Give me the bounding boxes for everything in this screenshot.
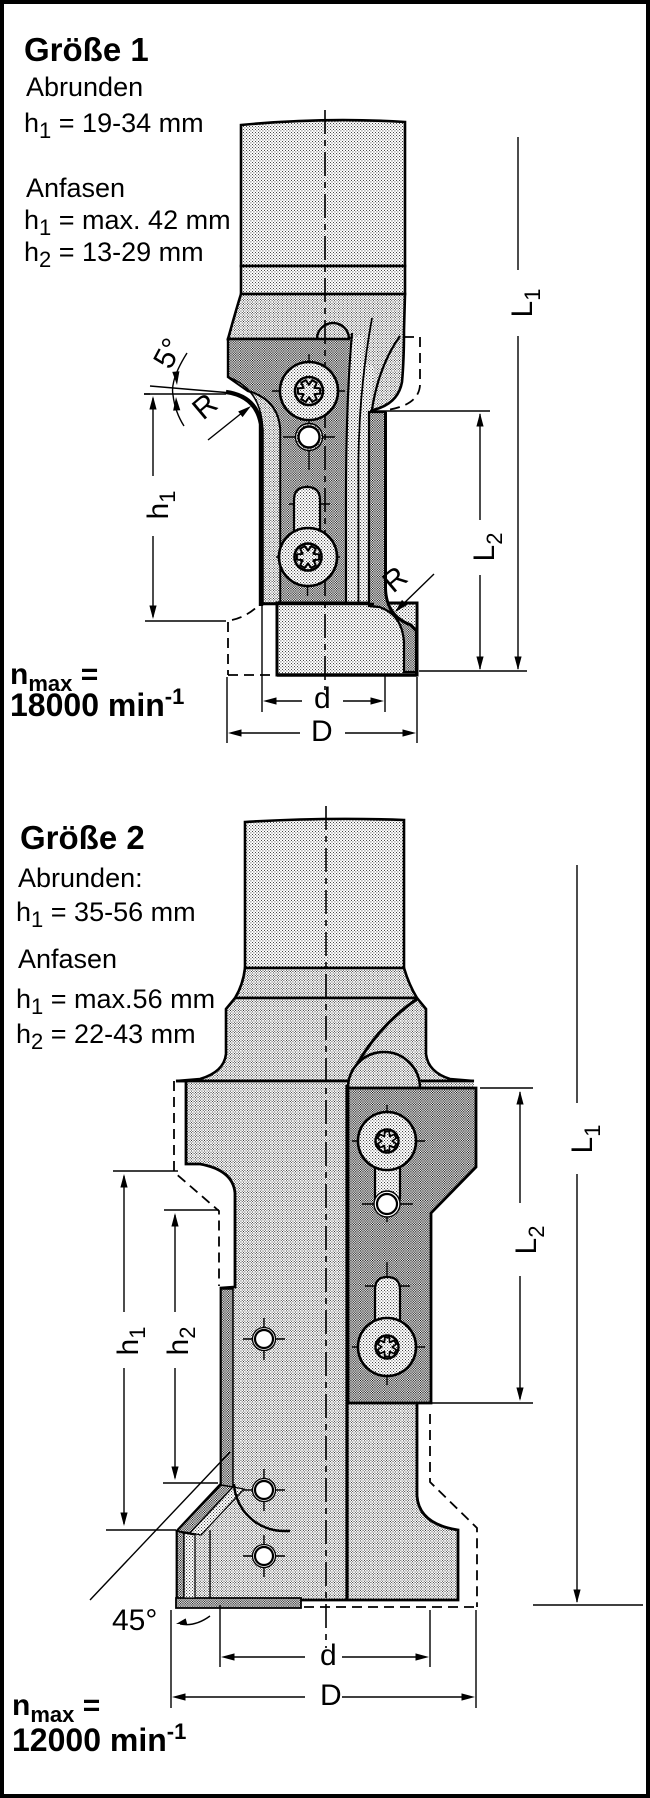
- svg-text:L1: L1: [506, 289, 545, 318]
- svg-text:h1 = max.56 mm: h1 = max.56 mm: [16, 984, 215, 1019]
- svg-text:h1: h1: [112, 1327, 150, 1356]
- svg-text:Anfasen: Anfasen: [26, 173, 125, 203]
- svg-text:5°: 5°: [147, 333, 190, 374]
- svg-text:L1: L1: [566, 1125, 605, 1154]
- svg-text:L2: L2: [510, 1226, 549, 1255]
- svg-text:Anfasen: Anfasen: [18, 944, 117, 974]
- svg-text:Abrunden: Abrunden: [26, 72, 143, 102]
- svg-text:D: D: [320, 1679, 342, 1712]
- svg-text:h2: h2: [162, 1327, 200, 1356]
- svg-text:h2 = 22-43 mm: h2 = 22-43 mm: [16, 1019, 196, 1054]
- svg-text:L2: L2: [468, 533, 507, 562]
- svg-text:h1 = 19-34 mm: h1 = 19-34 mm: [24, 108, 204, 143]
- svg-text:h1: h1: [142, 491, 180, 520]
- svg-text:R: R: [186, 387, 224, 426]
- svg-text:45°: 45°: [112, 1604, 157, 1637]
- svg-text:d: d: [314, 682, 331, 715]
- svg-text:Abrunden:: Abrunden:: [18, 863, 143, 893]
- svg-text:12000 min-1: 12000 min-1: [12, 1719, 186, 1758]
- svg-text:d: d: [320, 1639, 337, 1672]
- svg-text:Größe 1: Größe 1: [24, 31, 149, 68]
- svg-text:18000 min-1: 18000 min-1: [10, 684, 184, 723]
- svg-text:D: D: [311, 715, 333, 748]
- svg-text:h1 = 35-56 mm: h1 = 35-56 mm: [16, 897, 196, 932]
- svg-text:Größe 2: Größe 2: [20, 819, 145, 856]
- svg-text:h2 = 13-29 mm: h2 = 13-29 mm: [24, 237, 204, 272]
- svg-text:h1 = max. 42 mm: h1 = max. 42 mm: [24, 205, 231, 240]
